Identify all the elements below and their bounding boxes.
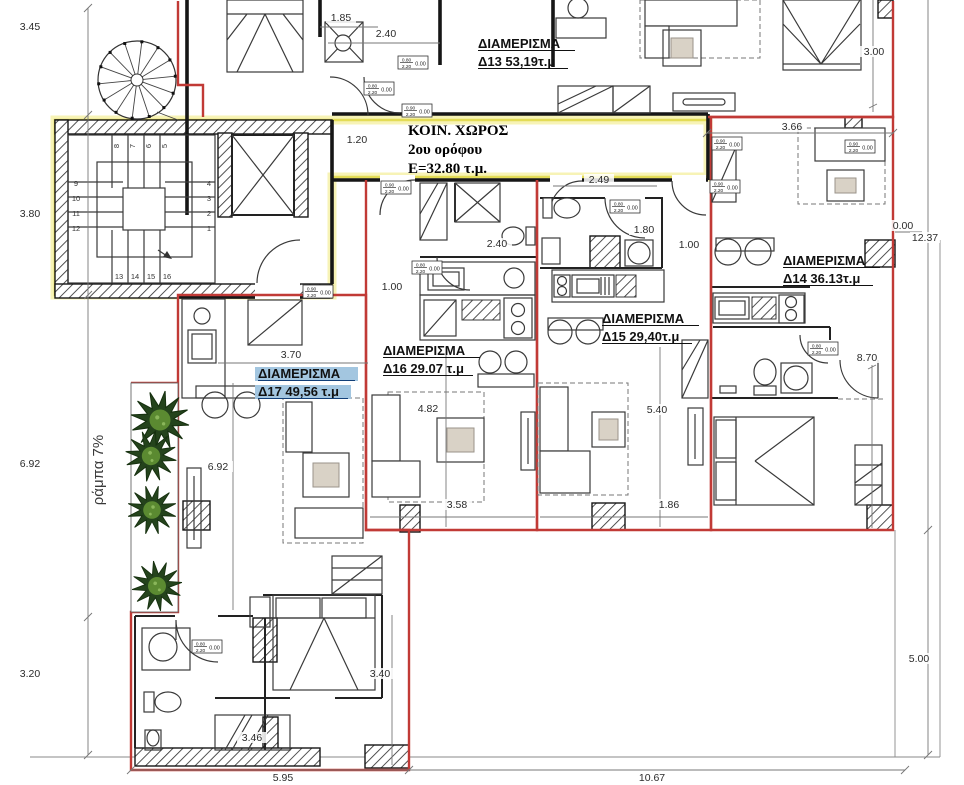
stair-number: 15	[147, 272, 155, 281]
door-size-tag: 0.902.200.00	[710, 180, 740, 194]
common-area-line1: ΚΟΙΝ. ΧΩΡΟΣ	[408, 123, 509, 139]
svg-text:0.90: 0.90	[307, 287, 317, 293]
dimension-label: 3.80	[20, 208, 41, 220]
stair-number: 12	[72, 224, 80, 233]
svg-text:0.00: 0.00	[415, 61, 426, 67]
dimension-label: 10.67	[639, 772, 665, 784]
door-size-tag: 0.902.200.00	[402, 104, 432, 118]
stair-number: 4	[207, 179, 211, 188]
wardrobe-d13	[558, 86, 650, 113]
dimension-label: 3.46	[242, 732, 263, 744]
svg-text:0.80: 0.80	[614, 202, 624, 208]
apartment-title: ΔΙΑΜΕΡΙΣΜΑ	[783, 253, 866, 268]
door-size-tag: 0.802.200.00	[610, 200, 640, 214]
svg-text:0.00: 0.00	[320, 290, 331, 296]
svg-text:0.90: 0.90	[849, 142, 859, 148]
apartment-area: Δ17 49,56 τ.μ	[258, 384, 339, 399]
stair-number: 9	[74, 179, 78, 188]
svg-text:0.00: 0.00	[419, 109, 430, 115]
dimension-label: 3.58	[447, 499, 468, 511]
dimension-label: 1.00	[382, 281, 403, 293]
staircase	[68, 135, 215, 283]
svg-text:0.00: 0.00	[381, 87, 392, 93]
stair-number: 14	[131, 272, 139, 281]
apartment-title: ΔΙΑΜΕΡΙΣΜΑ	[258, 366, 341, 381]
svg-text:0.00: 0.00	[398, 186, 409, 192]
svg-text:0.90: 0.90	[406, 106, 416, 112]
apartment-title: ΔΙΑΜΕΡΙΣΜΑ	[478, 36, 561, 51]
svg-text:2.20: 2.20	[385, 189, 395, 195]
stair-number: 6	[144, 144, 153, 148]
dimension-label: 6.92	[20, 458, 41, 470]
svg-text:0.00: 0.00	[862, 145, 873, 151]
svg-text:0.80: 0.80	[402, 58, 412, 64]
apartment-label-d13: ΔΙΑΜΕΡΙΣΜΑΔ13 53,19τ.μ	[478, 36, 575, 69]
svg-text:0.90: 0.90	[714, 182, 724, 188]
stair-number: 3	[207, 194, 211, 203]
apartment-area: Δ13 53,19τ.μ	[478, 54, 555, 69]
svg-text:2.20: 2.20	[368, 90, 378, 96]
dimension-label: 8.70	[857, 352, 878, 364]
stair-number: 16	[163, 272, 171, 281]
floor-plan-page: ράμπα 7%	[0, 0, 964, 785]
dimension-label: 5.95	[273, 772, 294, 784]
svg-text:0.90: 0.90	[385, 183, 395, 189]
door-size-tag: 0.802.200.00	[398, 56, 428, 70]
svg-text:0.80: 0.80	[196, 642, 206, 648]
dimension-label: 2.40	[487, 238, 508, 250]
svg-text:0.00: 0.00	[825, 347, 836, 353]
dimension-label: 0.00	[893, 220, 914, 232]
dimension-label: 3.66	[782, 121, 803, 133]
dimension-label: 6.92	[208, 461, 229, 473]
stair-number: 7	[128, 144, 137, 148]
furniture-top-left-bedroom	[227, 0, 303, 72]
dimension-label: 5.00	[909, 653, 930, 665]
svg-text:0.00: 0.00	[429, 266, 440, 272]
door-size-tag: 0.902.200.00	[845, 140, 875, 154]
dimension-label: 1.20	[347, 134, 368, 146]
shower-icon	[325, 22, 363, 62]
dimension-label: 1.85	[331, 12, 352, 24]
apartment-area: Δ15 29,40τ.μ	[602, 329, 679, 344]
svg-text:2.20: 2.20	[849, 148, 859, 154]
door-size-tag: 0.802.200.00	[364, 82, 394, 96]
door-size-tag: 0.902.200.00	[381, 181, 411, 195]
door-size-tag: 0.802.200.00	[412, 261, 442, 275]
stair-number: 13	[115, 272, 123, 281]
svg-text:2.20: 2.20	[402, 64, 412, 70]
svg-text:0.00: 0.00	[627, 205, 638, 211]
spiral-staircase-icon	[97, 40, 178, 120]
svg-text:0.00: 0.00	[209, 645, 220, 651]
svg-text:2.20: 2.20	[614, 208, 624, 214]
apartment-title: ΔΙΑΜΕΡΙΣΜΑ	[383, 343, 466, 358]
svg-text:2.20: 2.20	[307, 293, 317, 299]
dimension-label: 3.45	[20, 21, 41, 33]
dimension-label: 12.37	[912, 232, 938, 244]
stair-number: 2	[207, 209, 211, 218]
dimension-label: 3.20	[20, 668, 41, 680]
dimension-label: 1.80	[634, 224, 655, 236]
svg-text:0.00: 0.00	[727, 185, 738, 191]
dimension-label: 3.40	[370, 668, 391, 680]
svg-text:0.80: 0.80	[812, 344, 822, 350]
door-size-tag: 0.902.200.00	[303, 285, 333, 299]
dimension-label: 4.82	[418, 403, 439, 415]
apartment-label-d17[interactable]: ΔΙΑΜΕΡΙΣΜΑΔ17 49,56 τ.μ	[255, 366, 358, 399]
ramp-label: ράμπα 7%	[90, 435, 107, 506]
dimension-label: 1.86	[659, 499, 680, 511]
common-area-line3: Ε=32.80 τ.μ.	[408, 161, 487, 177]
trees	[115, 386, 194, 619]
desk-chair-top	[556, 0, 606, 38]
elevator	[232, 135, 294, 215]
dimension-label: 2.49	[589, 174, 610, 186]
svg-text:2.20: 2.20	[716, 145, 726, 151]
svg-text:0.80: 0.80	[368, 84, 378, 90]
svg-text:2.20: 2.20	[406, 112, 416, 118]
dimension-label: 5.40	[647, 404, 668, 416]
stair-number: 11	[72, 209, 80, 218]
apartment-area: Δ14 36.13τ.μ	[783, 271, 860, 286]
svg-text:0.00: 0.00	[729, 142, 740, 148]
dimension-label: 3.00	[864, 46, 885, 58]
stair-number: 10	[72, 194, 80, 203]
living-top-right	[640, 0, 760, 66]
common-area-label: ΚΟΙΝ. ΧΩΡΟΣ 2ου ορόφου Ε=32.80 τ.μ.	[408, 123, 509, 177]
apartment-label-d16: ΔΙΑΜΕΡΙΣΜΑΔ16 29.07 τ.μ	[383, 343, 480, 376]
apartment-title: ΔΙΑΜΕΡΙΣΜΑ	[602, 311, 685, 326]
door-size-tag: 0.902.200.00	[712, 137, 742, 151]
door-size-tag: 0.802.200.00	[808, 342, 838, 356]
svg-text:2.20: 2.20	[196, 648, 206, 654]
walls	[135, 0, 838, 750]
stair-number: 5	[160, 144, 169, 148]
svg-text:0.90: 0.90	[716, 139, 726, 145]
apartment-label-d15: ΔΙΑΜΕΡΙΣΜΑΔ15 29,40τ.μ	[602, 311, 699, 344]
stair-number: 1	[207, 224, 211, 233]
common-area-line2: 2ου ορόφου	[408, 142, 482, 158]
tv-console-d13	[673, 93, 735, 111]
dimension-label: 1.00	[679, 239, 700, 251]
svg-text:2.20: 2.20	[714, 188, 724, 194]
door-size-tag: 0.802.200.00	[192, 640, 222, 654]
apartment-area: Δ16 29.07 τ.μ	[383, 361, 464, 376]
floor-plan-drawing: ράμπα 7%	[0, 0, 964, 785]
svg-text:0.80: 0.80	[416, 263, 426, 269]
stair-number: 8	[112, 144, 121, 148]
dimension-label: 2.40	[376, 28, 397, 40]
svg-text:2.20: 2.20	[416, 269, 426, 275]
bed-top-right	[783, 0, 861, 70]
svg-text:2.20: 2.20	[812, 350, 822, 356]
dimension-label: 3.70	[281, 349, 302, 361]
